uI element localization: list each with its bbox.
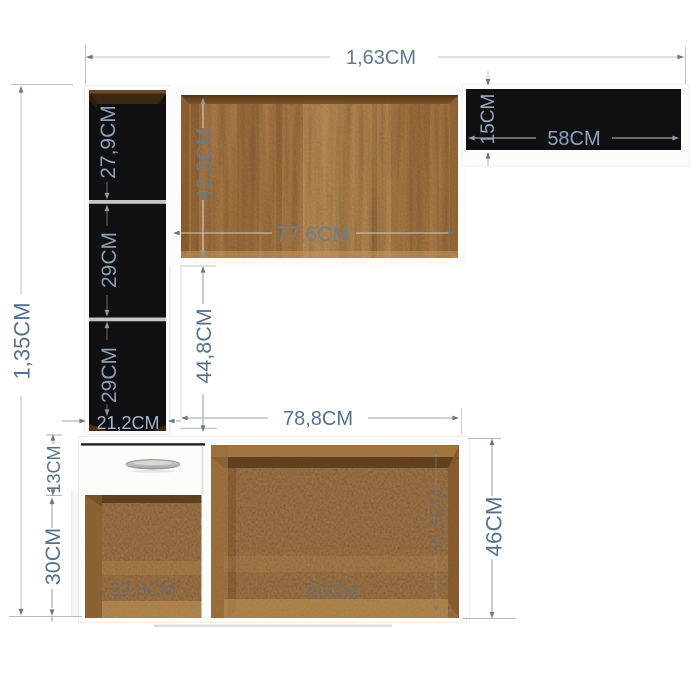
svg-text:15CM: 15CM <box>478 94 499 145</box>
svg-text:44,8CM: 44,8CM <box>192 308 216 383</box>
svg-text:27,9CM: 27,9CM <box>97 105 120 179</box>
svg-text:29CM: 29CM <box>98 347 121 403</box>
svg-text:32,8CM: 32,8CM <box>110 580 177 601</box>
svg-text:1,63CM: 1,63CM <box>346 47 416 69</box>
svg-text:13CM: 13CM <box>44 445 64 493</box>
svg-text:77,6CM: 77,6CM <box>276 223 350 246</box>
svg-text:1,35CM: 1,35CM <box>10 302 35 379</box>
svg-text:21,2CM: 21,2CM <box>96 413 159 433</box>
svg-text:58CM: 58CM <box>547 128 600 150</box>
svg-text:36,6CM: 36,6CM <box>427 489 448 556</box>
svg-text:66CM: 66CM <box>306 581 359 603</box>
svg-text:78,8CM: 78,8CM <box>283 408 353 430</box>
svg-text:42,3CM: 42,3CM <box>193 128 216 202</box>
svg-text:46CM: 46CM <box>482 496 507 556</box>
svg-text:30CM: 30CM <box>41 528 65 585</box>
svg-text:29CM: 29CM <box>98 232 121 288</box>
